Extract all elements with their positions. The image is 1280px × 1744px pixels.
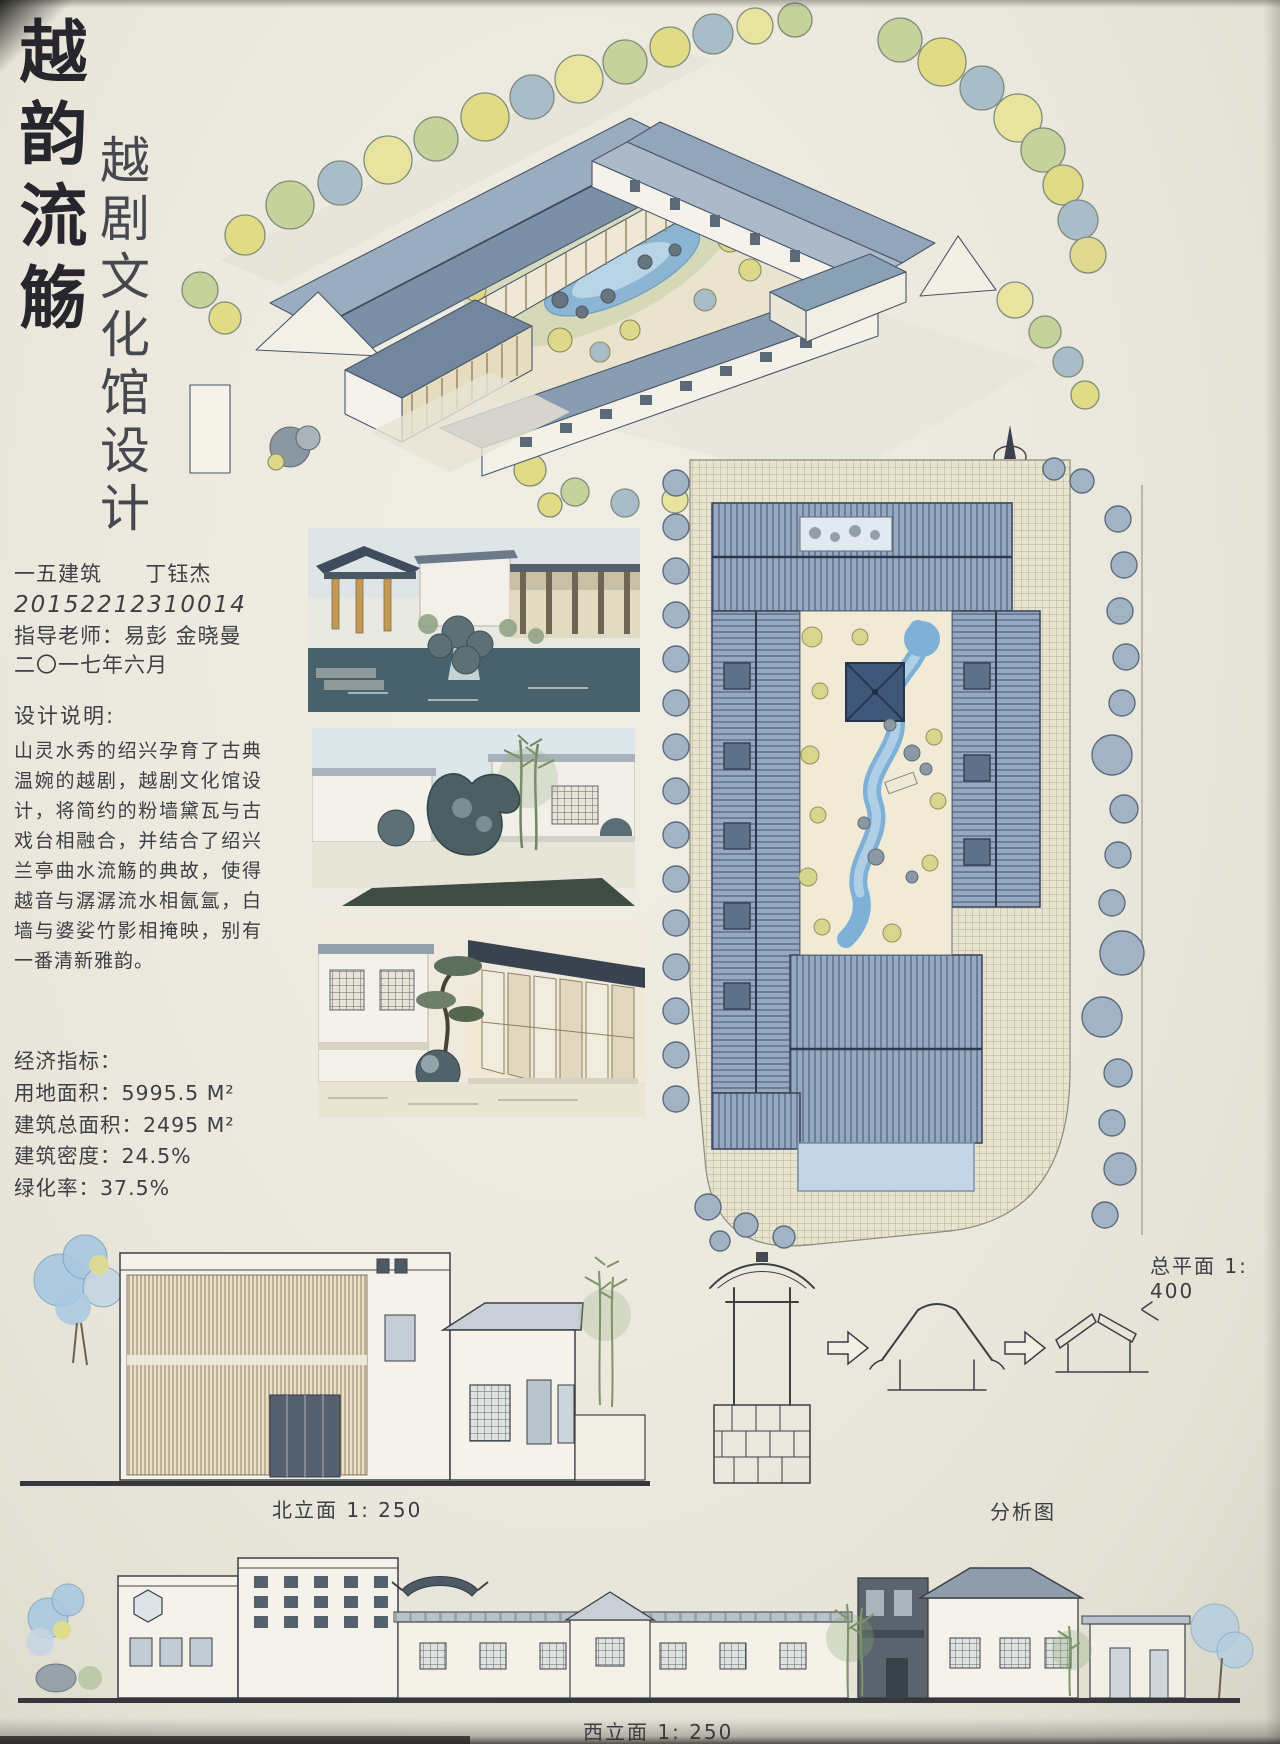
site-plan [650,425,1180,1270]
indicators-heading: 经济指标： [14,1046,235,1078]
student-name: 丁钰杰 [145,562,211,586]
elevation-tree [34,1235,123,1365]
sketch-folding-doors [318,922,645,1117]
west-elevation [10,1538,1265,1713]
main-volume [120,1253,450,1480]
class-student-line: 一五建筑 丁钰杰 [14,560,247,589]
design-notes-heading: 设计说明: [14,700,262,730]
sketch-rock-garden [312,728,635,906]
screen-wall [190,385,230,473]
photo-top-shadow [0,0,1280,8]
presentation-board: 越韵流觞 越剧文化馆设计 [0,0,1280,1744]
flow-arrow-icon [1005,1332,1045,1364]
north-elevation [15,1195,665,1495]
advisor-line: 指导老师：易彭 金晓曼 [14,622,247,651]
analysis-caption: 分析图 [990,1496,1056,1525]
ground-line [18,1698,1240,1703]
indicator-density: 建筑密度：24.5% [14,1141,235,1173]
date-line: 二〇一七年六月 [14,651,247,680]
ground-line [20,1481,650,1486]
indicator-land-area: 用地面积：5995.5 M² [14,1078,235,1110]
stage-roof [402,1577,478,1597]
gable-outline-diagram [870,1304,1004,1390]
flow-arrow-icon [828,1332,868,1364]
entry-rockery [268,426,320,470]
analysis-diagrams [700,1240,1160,1500]
mid-gable [566,1592,654,1698]
bamboo-cluster [579,1257,631,1407]
right-low-blocks [1082,1616,1190,1698]
split-roof-diagram [1056,1302,1158,1372]
site-plan-caption: 总平面 1: 400 [1150,1250,1280,1303]
gable-house-right [920,1568,1082,1698]
west-tree-rock [26,1584,102,1692]
north-elevation-caption: 北立面 1: 250 [272,1494,422,1523]
stage-pavilion [846,663,904,721]
class-name: 一五建筑 [14,562,102,586]
design-notes: 设计说明: 山灵水秀的绍兴孕育了古典温婉的越剧，越剧文化馆设计，将简约的粉墙黛瓦… [14,700,262,976]
tall-block [238,1558,398,1698]
economic-indicators: 经济指标： 用地面积：5995.5 M² 建筑总面积：2495 M² 建筑密度：… [14,1046,235,1205]
project-info: 一五建筑 丁钰杰 20152212310014 指导老师：易彭 金晓曼 二〇一七… [14,560,247,680]
photo-right-shadow [1264,0,1280,1744]
design-notes-body: 山灵水秀的绍兴孕育了古典温婉的越剧，越剧文化馆设计，将简约的粉墙黛瓦与古戏台相融… [14,736,262,976]
photo-corner-shadow [0,0,90,90]
indicator-floor-area: 建筑总面积：2495 M² [14,1110,235,1142]
photo-bottom-left-shadow [0,1736,470,1744]
student-id: 20152212310014 [14,589,247,621]
colonnade [510,564,640,638]
plan-courtyard [799,611,952,955]
sketch-pavilion-pond [308,528,640,712]
block-hexagon-window [118,1576,238,1698]
stage-section-diagram [710,1252,814,1483]
lattice-window [470,1385,510,1441]
lattice-window [552,786,598,824]
